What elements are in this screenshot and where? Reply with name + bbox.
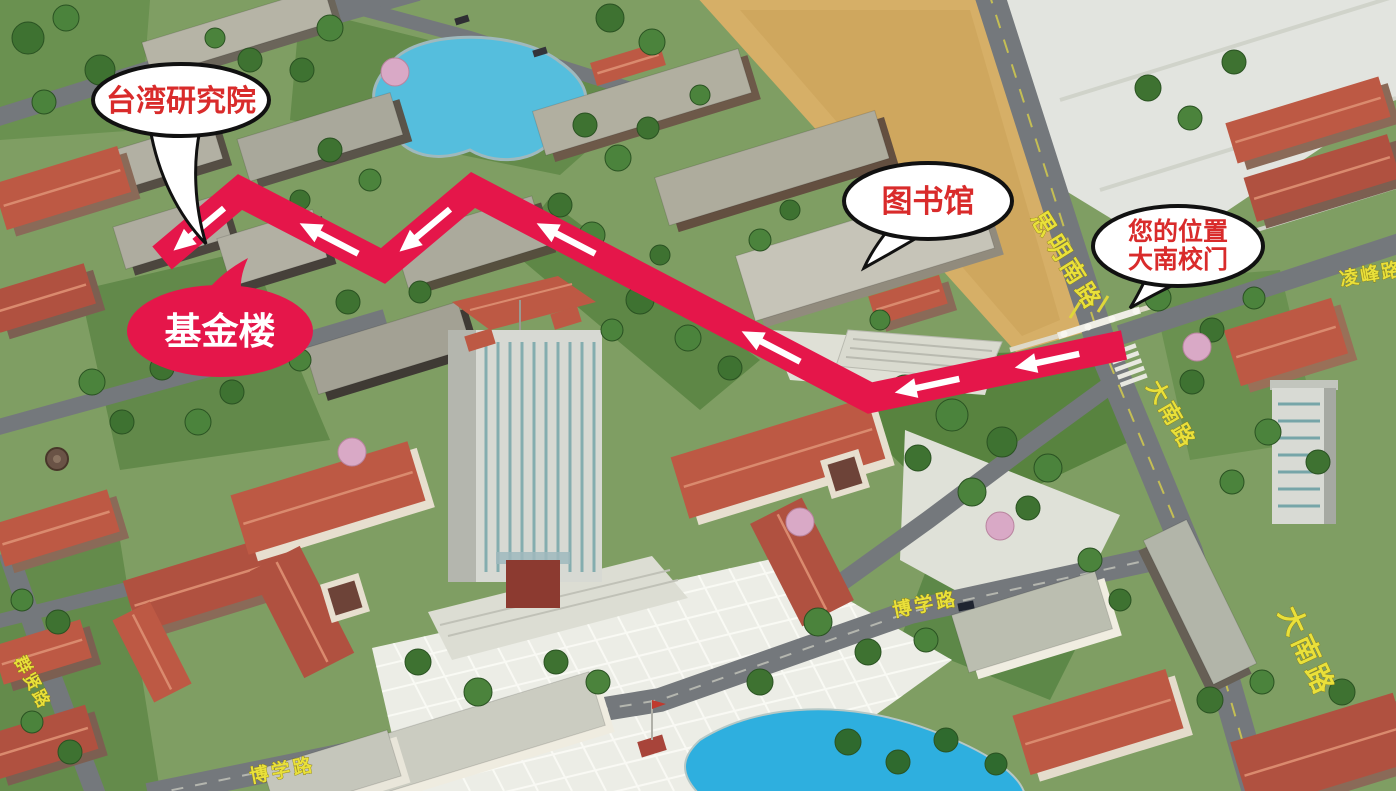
blossom-tree [786, 508, 814, 536]
callout-label: 基金楼 [165, 310, 276, 353]
callout-label: 图书馆 [882, 184, 975, 220]
blossom-tree [381, 58, 409, 86]
callout-label: 台湾研究院 [106, 84, 256, 119]
right-tower-building [1270, 380, 1338, 524]
callout-label-line1: 您的位置 [1128, 217, 1228, 246]
campus-map-screenshot: 思明南路 凌峰路 大南路 大南路 博学路 博学路 群贤路 台湾研究院 图书馆 您… [0, 0, 1396, 791]
blossom-tree [1183, 333, 1211, 361]
campus-map-image: 思明南路 凌峰路 大南路 大南路 博学路 博学路 群贤路 台湾研究院 图书馆 您… [0, 0, 1396, 791]
callout-label-line2: 大南校门 [1128, 245, 1228, 274]
blossom-tree [986, 512, 1014, 540]
pavilion [46, 448, 68, 470]
blossom-tree [338, 438, 366, 466]
